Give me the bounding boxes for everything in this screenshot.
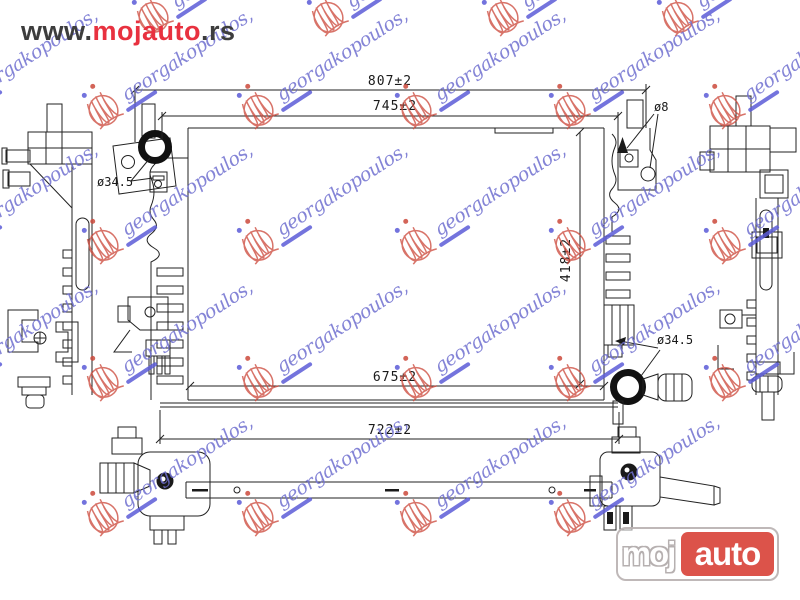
site-url-suffix: .rs: [201, 16, 236, 46]
page: ø34.5 ø8: [0, 0, 800, 600]
dim-side-height: 418±2: [559, 238, 574, 282]
dim-bottom-inner: 675±2: [373, 370, 417, 385]
mid-left-bracket: [114, 297, 170, 374]
inlet-bracket-hole: [122, 156, 135, 169]
inlet-leader-line: [131, 158, 150, 181]
filler-cap: [658, 374, 692, 401]
dimension-lines: 807±2 745±2 418±2 675±2 722±2: [131, 74, 650, 444]
top-right-bracket: [617, 100, 656, 190]
site-url-brand: mojauto: [93, 16, 202, 46]
bottom-view-right-fitting: [590, 427, 720, 530]
mojauto-logo: moj auto: [616, 527, 779, 581]
dim-top-inner: 745±2: [373, 99, 417, 114]
label-outlet-diameter: ø34.5: [657, 333, 693, 347]
left-side-rungs: [63, 250, 72, 384]
logo-text-moj: moj: [618, 529, 678, 579]
right-tank-slots: [604, 236, 634, 357]
outlet-assembly: [613, 373, 692, 425]
dim-bottom-overall: 722±2: [368, 423, 412, 438]
label-mount-hole: ø8: [654, 100, 668, 114]
left-side-view: [2, 104, 92, 408]
bottom-view-left-fitting: [100, 427, 210, 544]
mount-hole: [641, 167, 655, 181]
logo-text-auto: auto: [681, 532, 774, 576]
mount-arrow: [617, 137, 628, 153]
right-side-rungs: [747, 300, 756, 380]
dim-top-overall: 807±2: [368, 74, 412, 89]
right-side-view: [700, 96, 796, 420]
outlet-port: [614, 373, 643, 402]
site-url-prefix: www.: [21, 16, 93, 46]
site-url: www.mojauto.rs: [21, 16, 236, 47]
radiator-technical-drawing: ø34.5 ø8: [0, 0, 800, 600]
label-inlet-diameter: ø34.5: [97, 175, 133, 189]
